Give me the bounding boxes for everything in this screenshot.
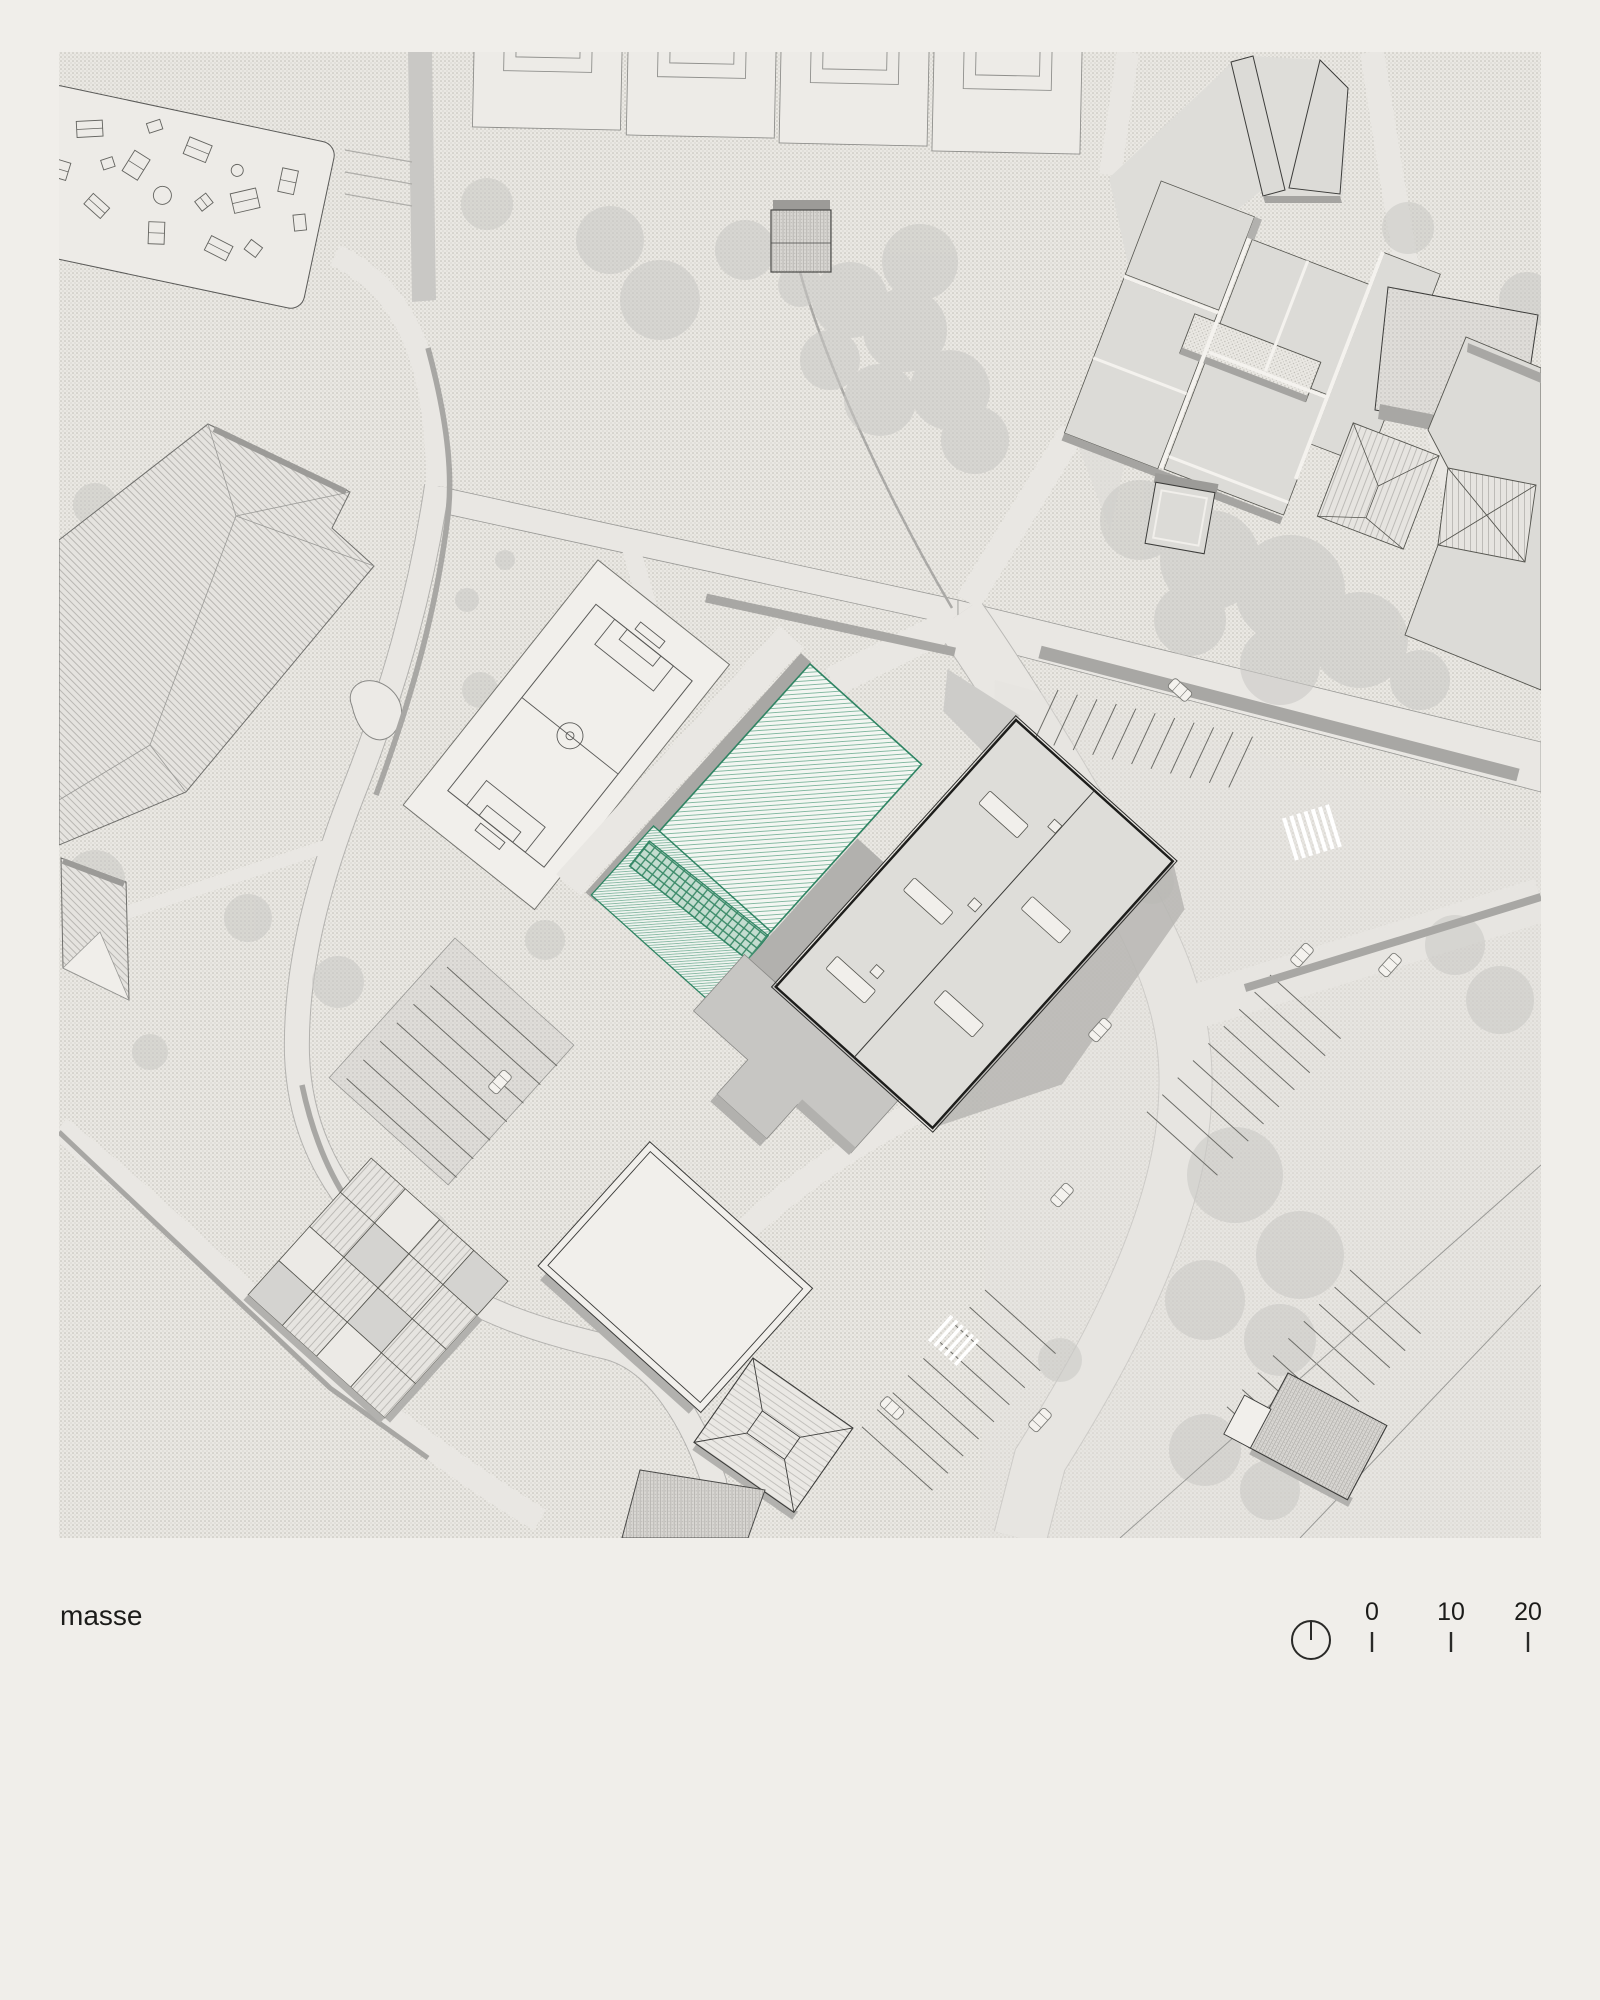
svg-text:10: 10	[1437, 1598, 1465, 1626]
svg-text:0: 0	[1365, 1598, 1379, 1626]
svg-text:masse: masse	[60, 1600, 142, 1631]
svg-text:20: 20	[1514, 1598, 1542, 1626]
